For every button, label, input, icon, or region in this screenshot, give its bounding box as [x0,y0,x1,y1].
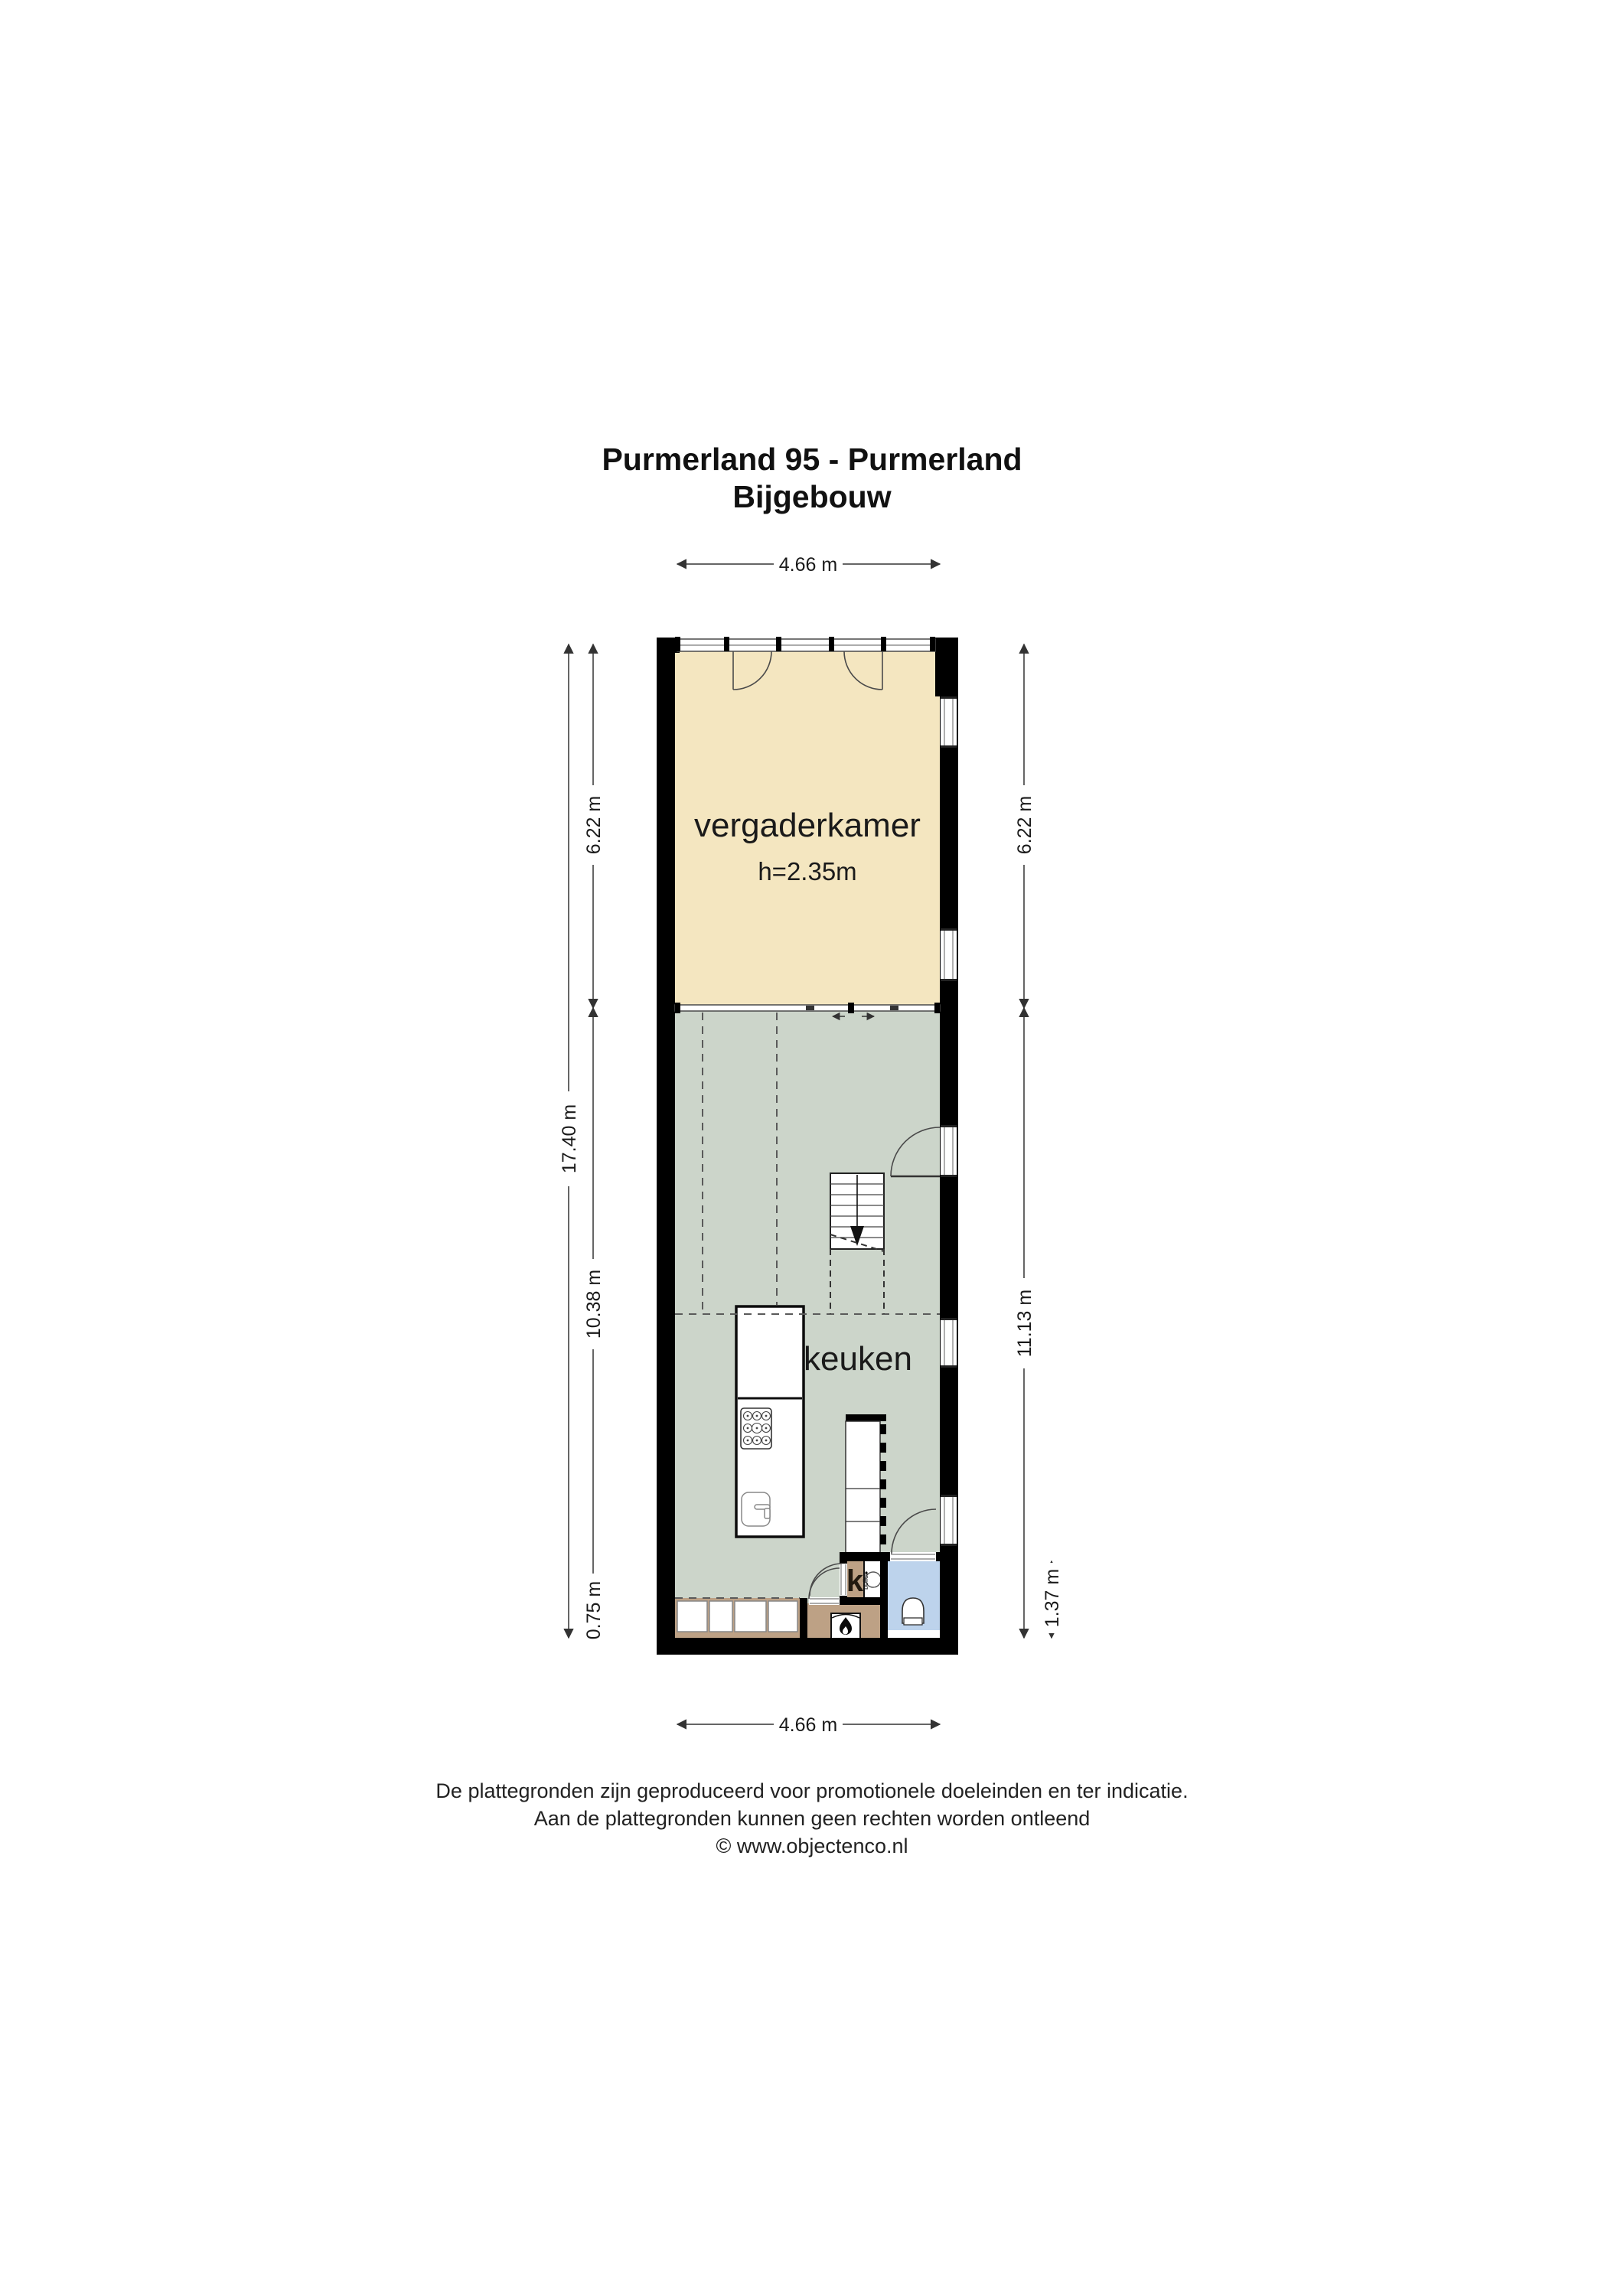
dim-left-lower: 0.75 m [583,1581,605,1639]
dim-right-upper: 6.22 m [1014,796,1035,854]
appliance-cabinet [846,1421,880,1554]
fireplace-stove-icon [831,1613,860,1639]
sliding-door-leaf [806,1006,814,1010]
floorplan-drawing: boiler [0,0,1624,2296]
window [941,928,957,981]
sink-icon [742,1492,770,1526]
top-right-corner-wall [935,638,958,696]
dim-bottom-width: 4.66 m [779,1714,837,1736]
dim-left-total: 17.40 m [559,1104,580,1173]
toilet-icon [902,1598,924,1625]
gas-hob-icon [741,1408,771,1449]
toilet-room-threshold [888,1630,940,1638]
sliding-door-leaf [890,1006,898,1010]
window [941,1495,957,1546]
window [941,1318,957,1368]
disclaimer-line1: De plattegronden zijn geproduceerd voor … [0,1777,1624,1805]
lower-cabinets [677,1601,797,1632]
room-label-vergaderkamer: vergaderkamer [694,807,921,844]
dim-top-width: 4.66 m [779,554,837,576]
disclaimer-line2: Aan de plattegronden kunnen geen rechten… [0,1805,1624,1832]
counter-column [846,1414,886,1554]
room-height-note: h=2.35m [758,857,856,885]
window [941,696,957,748]
dim-left-upper: 6.22 m [583,796,605,854]
bottom-wall [657,1638,958,1655]
dim-right-lower: 1.37 m [1042,1569,1063,1627]
floor-fills [675,651,940,1638]
room-label-kast: k [846,1564,864,1598]
disclaimer: De plattegronden zijn geproduceerd voor … [0,1777,1624,1860]
room-label-keuken: keuken [804,1340,912,1378]
dim-right-middle: 11.13 m [1014,1290,1035,1357]
counter-cap-wall [846,1414,886,1421]
kitchen-island [736,1306,804,1537]
floorplan-page: Purmerland 95 - Purmerland Bijgebouw [0,0,1624,2296]
keuken-floor [675,1011,940,1638]
dim-left-middle: 10.38 m [583,1270,605,1339]
left-wall [657,638,675,1655]
copyright-line: © www.objectenco.nl [0,1832,1624,1860]
